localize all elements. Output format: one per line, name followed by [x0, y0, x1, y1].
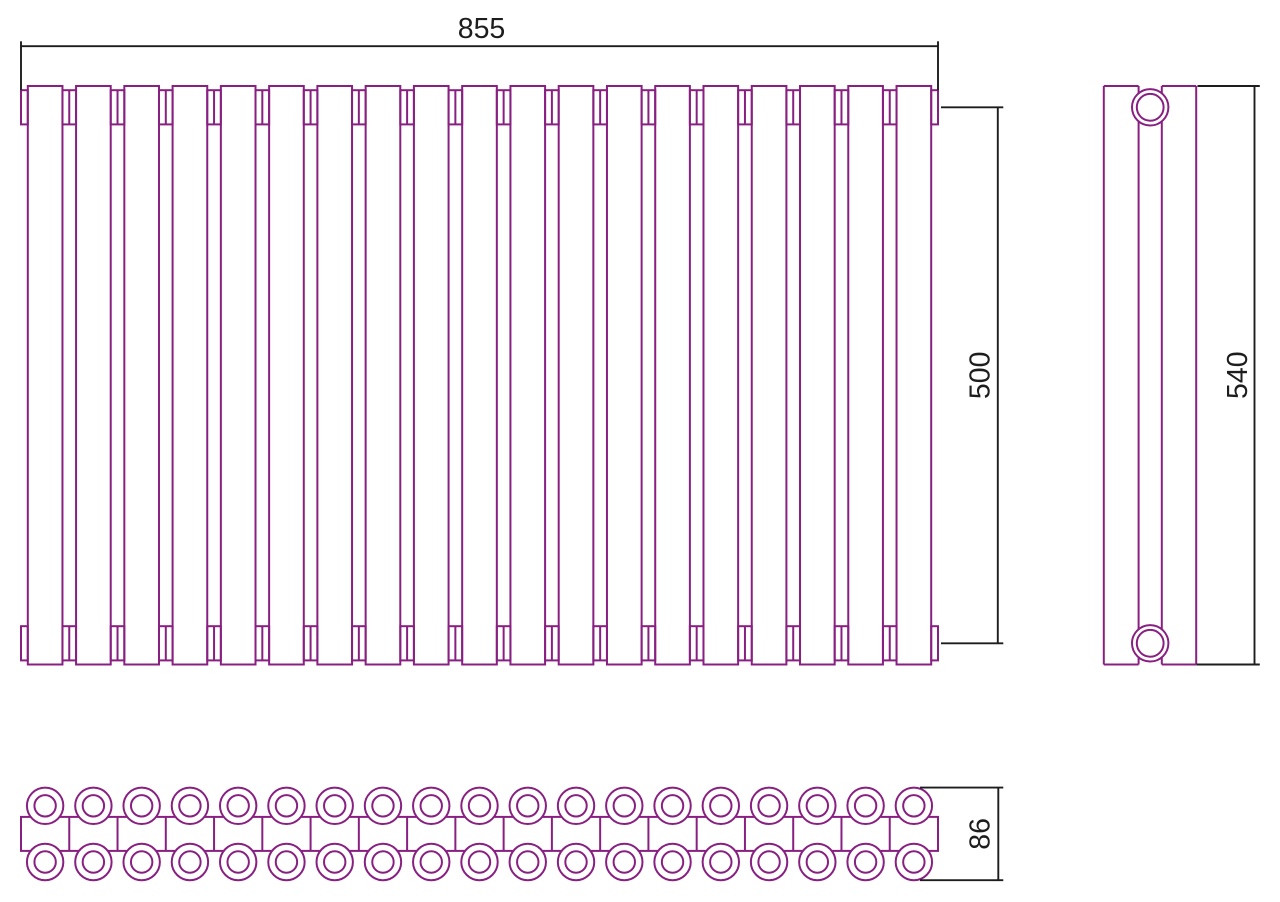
- svg-text:540: 540: [1222, 351, 1254, 399]
- svg-text:86: 86: [964, 818, 996, 850]
- svg-text:500: 500: [964, 352, 996, 400]
- svg-text:855: 855: [458, 13, 506, 45]
